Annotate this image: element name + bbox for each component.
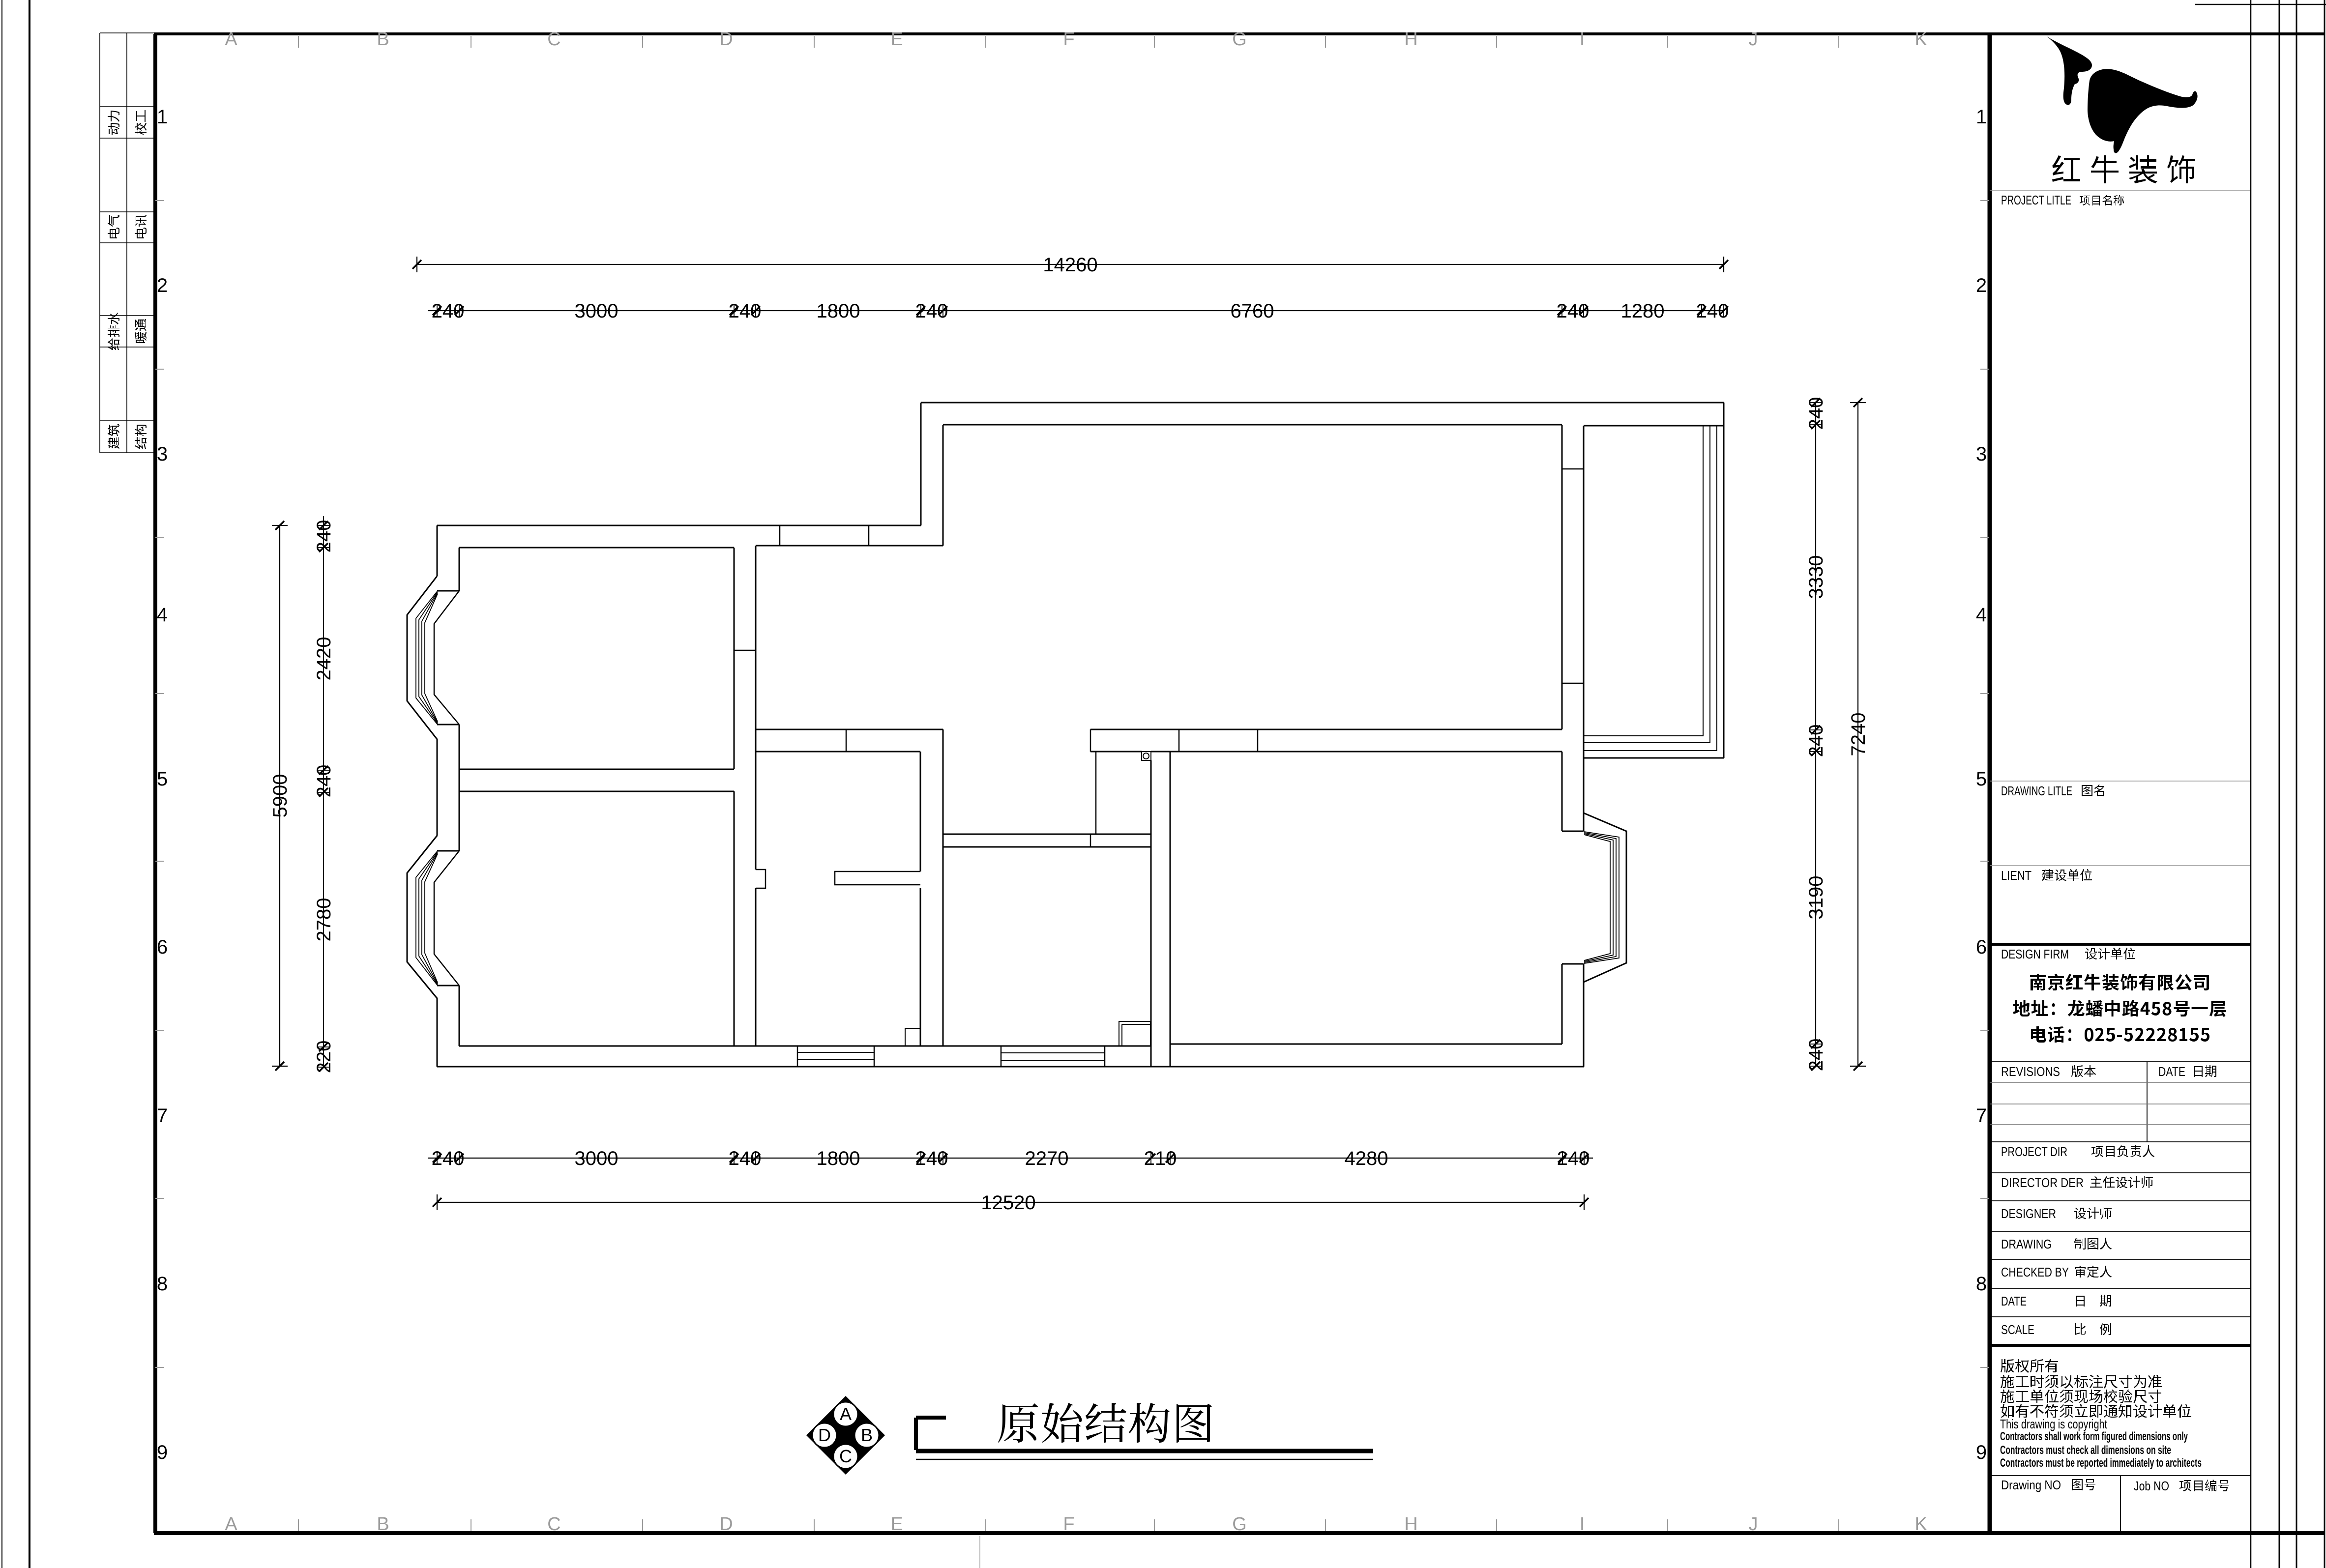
svg-text:2: 2 <box>1976 275 1987 296</box>
svg-text:240: 240 <box>1696 300 1729 322</box>
svg-text:240: 240 <box>1557 1148 1590 1169</box>
svg-text:DESIGN FIRM: DESIGN FIRM <box>2001 947 2069 961</box>
svg-text:220: 220 <box>313 1041 335 1074</box>
svg-text:LIENT: LIENT <box>2001 868 2032 883</box>
svg-text:2270: 2270 <box>1025 1148 1069 1169</box>
svg-text:D: D <box>719 1514 733 1535</box>
svg-text:240: 240 <box>915 300 948 322</box>
svg-text:Contractors must check all dim: Contractors must check all dimensions on… <box>2000 1444 2171 1457</box>
svg-text:240: 240 <box>313 765 335 798</box>
svg-text:3000: 3000 <box>575 1148 618 1169</box>
svg-text:9: 9 <box>1976 1442 1987 1463</box>
svg-text:1280: 1280 <box>1621 300 1665 322</box>
svg-text:12520: 12520 <box>981 1192 1035 1214</box>
svg-text:2420: 2420 <box>313 637 335 681</box>
svg-text:240: 240 <box>1557 300 1590 322</box>
svg-text:DESIGNER: DESIGNER <box>2001 1206 2056 1221</box>
svg-text:C: C <box>547 29 560 50</box>
svg-text:6760: 6760 <box>1231 300 1274 322</box>
svg-text:6: 6 <box>157 936 168 958</box>
svg-text:D: D <box>719 29 733 50</box>
svg-text:240: 240 <box>729 300 762 322</box>
svg-text:Drawing NO: Drawing NO <box>2001 1478 2061 1492</box>
svg-text:5: 5 <box>1976 768 1987 790</box>
svg-text:I: I <box>1580 1514 1585 1535</box>
svg-text:PROJECT LITLE: PROJECT LITLE <box>2001 193 2071 207</box>
svg-text:7: 7 <box>1976 1105 1987 1127</box>
svg-text:B: B <box>377 1514 389 1535</box>
svg-text:240: 240 <box>1805 1039 1827 1072</box>
svg-text:240: 240 <box>915 1148 948 1169</box>
svg-text:DRAWING LITLE: DRAWING LITLE <box>2001 784 2072 798</box>
svg-text:8: 8 <box>157 1273 168 1295</box>
svg-text:240: 240 <box>432 300 465 322</box>
svg-text:REVISIONS: REVISIONS <box>2001 1064 2060 1079</box>
svg-text:6: 6 <box>1976 936 1987 958</box>
svg-text:DIRECTOR DER: DIRECTOR DER <box>2001 1175 2084 1190</box>
svg-text:2: 2 <box>157 275 168 296</box>
svg-text:H: H <box>1404 1514 1417 1535</box>
svg-text:Job NO: Job NO <box>2134 1479 2169 1493</box>
svg-text:1: 1 <box>157 106 168 128</box>
svg-text:C: C <box>839 1446 852 1466</box>
svg-text:K: K <box>1914 1514 1927 1535</box>
svg-text:4: 4 <box>1976 604 1987 626</box>
svg-text:5900: 5900 <box>269 774 291 818</box>
svg-text:B: B <box>377 29 389 50</box>
svg-text:G: G <box>1232 29 1247 50</box>
svg-text:3330: 3330 <box>1805 555 1827 599</box>
svg-text:E: E <box>890 1514 903 1535</box>
svg-text:A: A <box>225 1514 237 1535</box>
svg-text:D: D <box>818 1425 831 1445</box>
svg-text:A: A <box>840 1404 852 1424</box>
svg-text:3: 3 <box>1976 443 1987 465</box>
svg-text:7240: 7240 <box>1848 713 1869 756</box>
svg-text:E: E <box>890 29 903 50</box>
svg-text:Contractors must be reported i: Contractors must be reported immediately… <box>2000 1456 2202 1470</box>
svg-text:240: 240 <box>1805 725 1827 757</box>
svg-text:3: 3 <box>157 443 168 465</box>
svg-text:5: 5 <box>157 768 168 790</box>
svg-text:240: 240 <box>313 520 335 553</box>
svg-text:A: A <box>225 29 237 50</box>
svg-text:4: 4 <box>157 604 168 626</box>
svg-text:Contractors shall work form fi: Contractors shall work form figured dime… <box>2000 1430 2188 1443</box>
svg-text:J: J <box>1749 1514 1758 1535</box>
svg-text:DATE: DATE <box>2158 1064 2185 1079</box>
svg-text:PROJECT DIR: PROJECT DIR <box>2001 1144 2067 1159</box>
svg-text:1800: 1800 <box>817 1148 860 1169</box>
svg-text:C: C <box>547 1514 560 1535</box>
svg-text:B: B <box>861 1425 873 1445</box>
svg-text:K: K <box>1914 29 1927 50</box>
svg-text:This drawing is copyright: This drawing is copyright <box>2000 1417 2108 1431</box>
svg-text:F: F <box>1063 1514 1074 1535</box>
svg-text:DATE: DATE <box>2001 1294 2027 1308</box>
svg-text:1: 1 <box>1976 106 1987 128</box>
svg-text:7: 7 <box>157 1105 168 1127</box>
svg-text:9: 9 <box>157 1442 168 1463</box>
svg-text:DRAWING: DRAWING <box>2001 1237 2052 1251</box>
svg-text:240: 240 <box>432 1148 465 1169</box>
svg-text:2780: 2780 <box>313 898 335 942</box>
svg-text:3190: 3190 <box>1805 876 1827 920</box>
svg-text:H: H <box>1404 29 1417 50</box>
svg-text:8: 8 <box>1976 1273 1987 1295</box>
svg-text:I: I <box>1580 29 1585 50</box>
svg-text:14260: 14260 <box>1043 254 1097 276</box>
svg-text:240: 240 <box>729 1148 762 1169</box>
svg-text:CHECKED BY: CHECKED BY <box>2001 1265 2069 1279</box>
svg-text:SCALE: SCALE <box>2001 1322 2034 1337</box>
svg-text:3000: 3000 <box>575 300 618 322</box>
svg-text:4280: 4280 <box>1345 1148 1388 1169</box>
svg-text:240: 240 <box>1805 397 1827 430</box>
svg-text:F: F <box>1063 29 1074 50</box>
svg-text:210: 210 <box>1144 1148 1177 1169</box>
svg-text:G: G <box>1232 1514 1247 1535</box>
svg-text:1800: 1800 <box>817 300 860 322</box>
svg-text:J: J <box>1749 29 1758 50</box>
